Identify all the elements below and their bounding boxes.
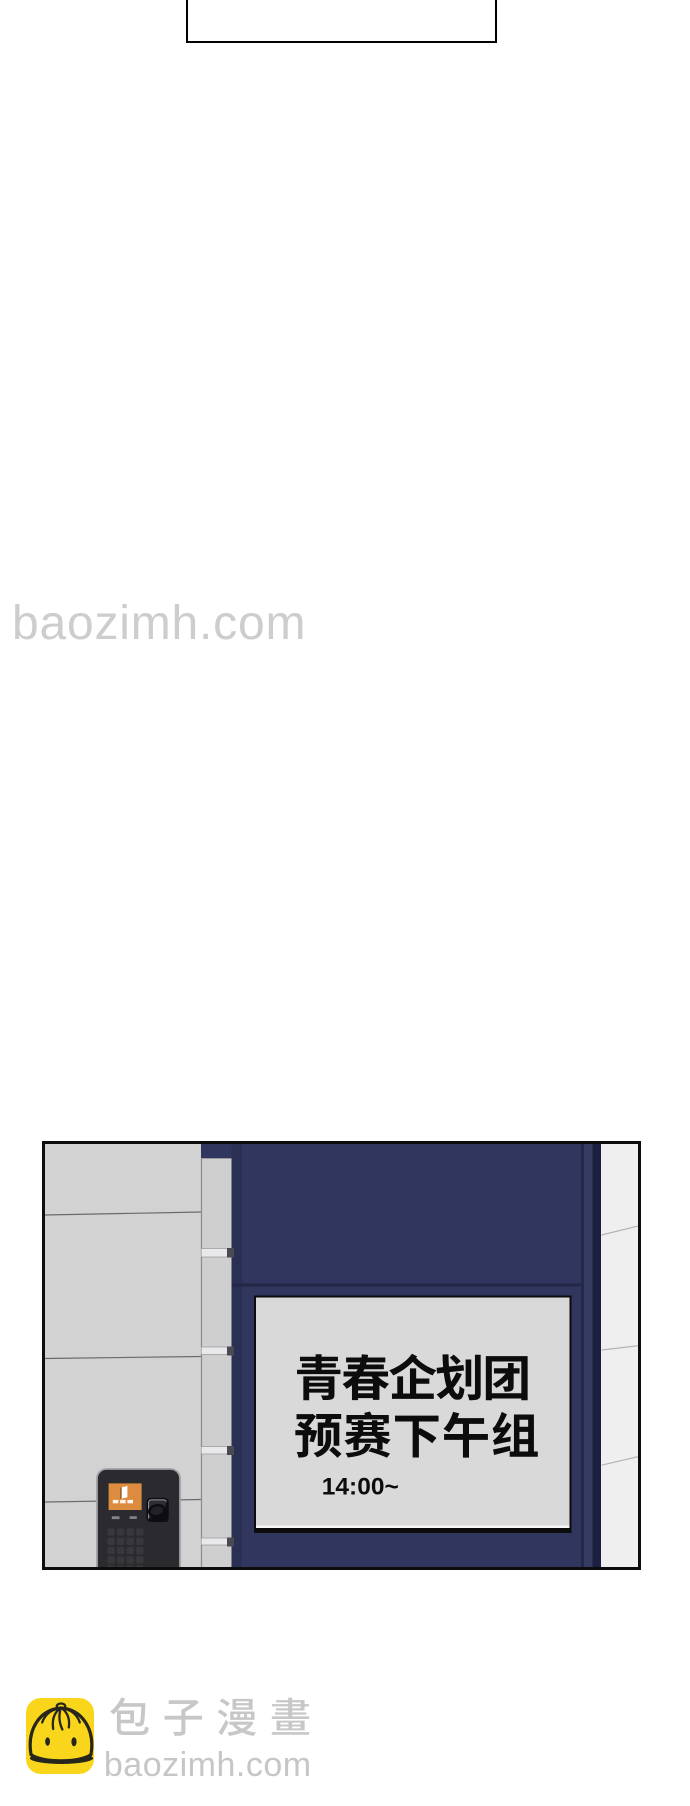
- svg-text:14:00~: 14:00~: [322, 1474, 399, 1501]
